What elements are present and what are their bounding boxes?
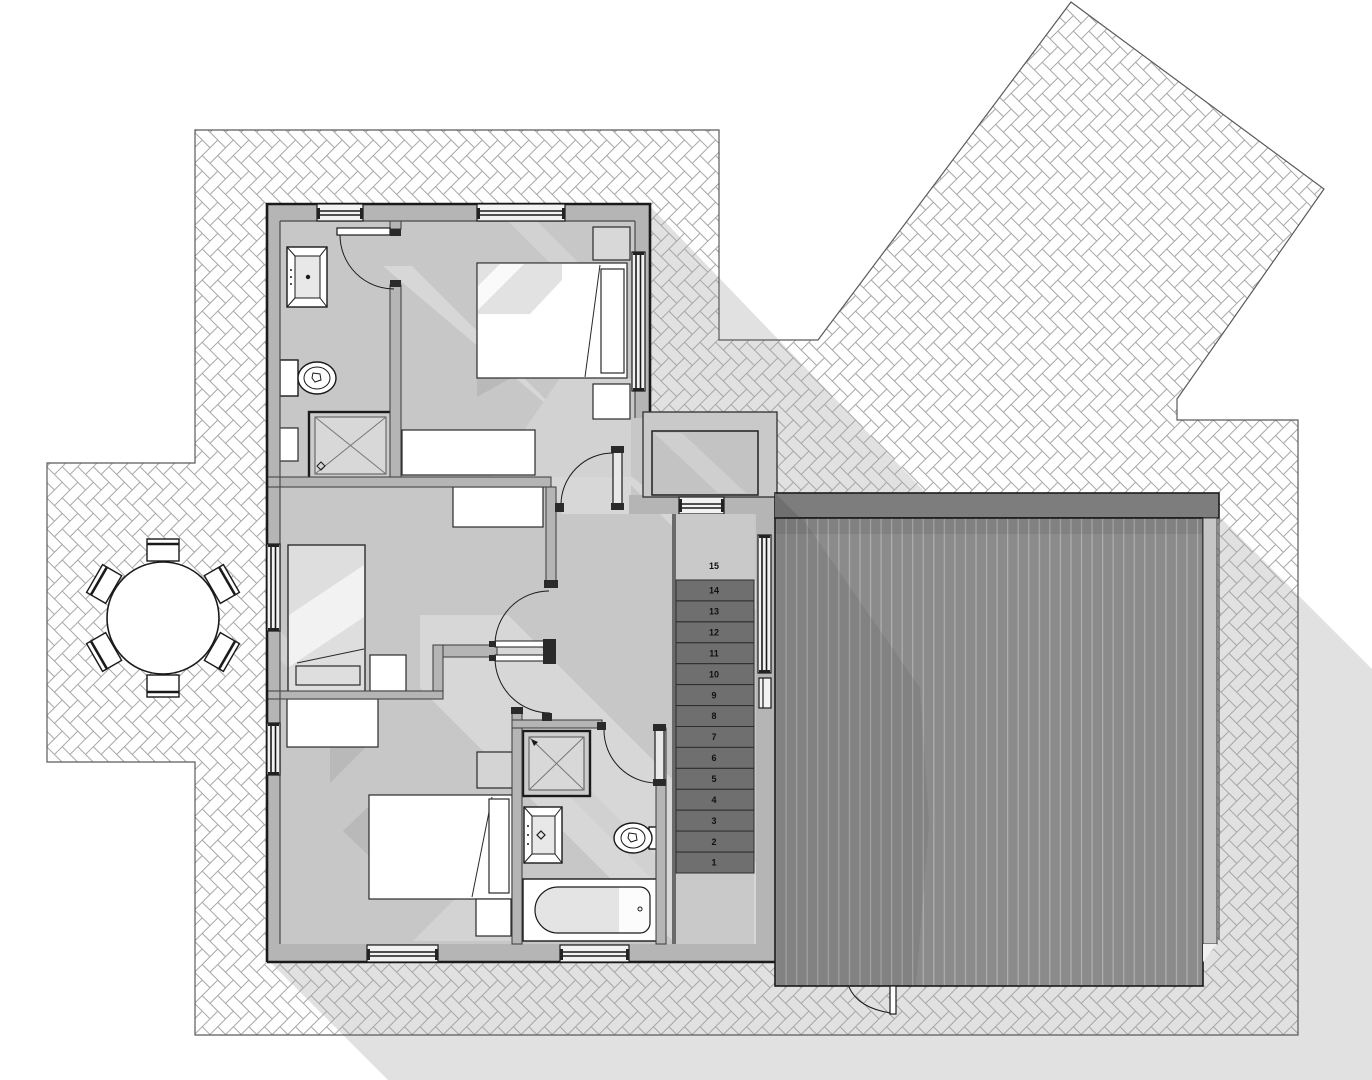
svg-text:11: 11 — [709, 648, 719, 658]
svg-text:5: 5 — [711, 774, 716, 784]
svg-text:2: 2 — [711, 837, 716, 847]
svg-text:6: 6 — [711, 753, 716, 763]
svg-text:4: 4 — [711, 795, 716, 805]
svg-text:10: 10 — [709, 669, 719, 679]
svg-text:9: 9 — [711, 690, 716, 700]
svg-text:14: 14 — [709, 586, 719, 596]
svg-text:1: 1 — [711, 858, 716, 868]
svg-text:15: 15 — [709, 561, 719, 571]
svg-text:3: 3 — [711, 816, 716, 826]
svg-text:7: 7 — [711, 732, 716, 742]
svg-text:12: 12 — [709, 628, 719, 638]
svg-text:13: 13 — [709, 607, 719, 617]
svg-text:8: 8 — [711, 711, 716, 721]
